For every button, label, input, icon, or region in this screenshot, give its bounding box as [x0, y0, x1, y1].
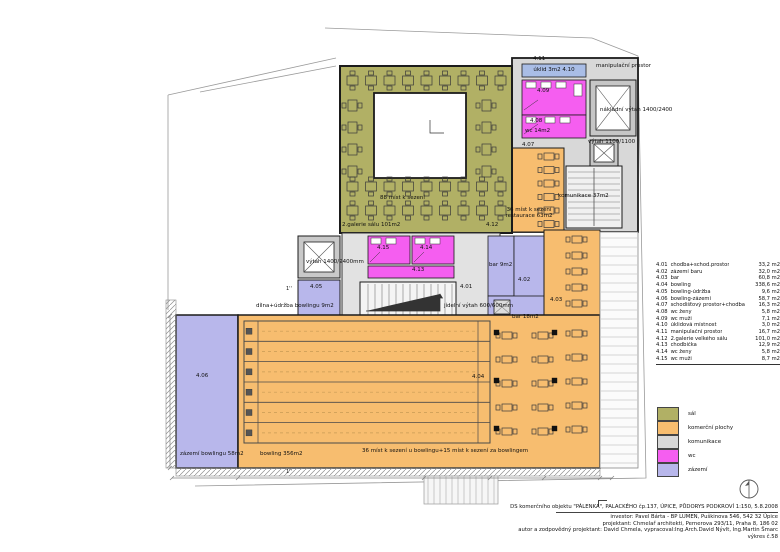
room-table-row: 4.03bar60,8 m2: [656, 275, 780, 282]
legend-swatch: [657, 463, 679, 477]
legend-item: sál: [657, 407, 733, 420]
room-table-row: 4.15wc muži8,7 m2: [656, 356, 780, 363]
label-bar-9m2: bar 9m2: [489, 262, 512, 268]
legend-label: zázemí: [688, 467, 707, 473]
room-label-4-07: 4.07: [522, 142, 534, 148]
hatched-strip-bottom: [176, 468, 600, 476]
room-label-4-06: 4.06: [196, 373, 208, 379]
section-mark-2: 1'': [286, 470, 292, 476]
room-label-4-05: 4.05: [310, 284, 322, 290]
room-table-row: 4.11manipulační prostor16,7 m2: [656, 329, 780, 336]
room-table-row: 4.06bowling-zázemí58,7 m2: [656, 296, 780, 303]
label-vytah-1400: výtah 1400/2400mm: [306, 259, 364, 265]
room-table-row: 4.08wc ženy5,8 m2: [656, 309, 780, 316]
room-label-4-09: 4.09: [537, 88, 549, 94]
room-table-row: 4.07schodišťový prostor+chodba16,3 m2: [656, 302, 780, 309]
terrace-strip: [600, 232, 638, 468]
legend-swatch: [657, 407, 679, 421]
legend-swatch: [657, 435, 679, 449]
room-table-row: 4.10úklidová místnost3,0 m2: [656, 322, 780, 329]
room-table-row: 4.14wc ženy5,8 m2: [656, 349, 780, 356]
room-label-4-04: 4.04: [472, 374, 484, 380]
room-table-row: 4.01chodba+schod.prostor33,2 m2: [656, 262, 780, 269]
legend-swatch: [657, 449, 679, 463]
label-vytah-1100: výtah 1100/1100: [588, 139, 635, 145]
room-label-4-13: 4.13: [412, 267, 424, 273]
label-restaurace: 36 míst k sezení restaurace 63m2: [500, 207, 558, 220]
room-chodbicka-413: [368, 266, 454, 278]
label-2-galerie-salu: 2.galerie sálu 101m2: [342, 222, 400, 228]
room-label-4-15: 4.15: [377, 245, 389, 251]
room-table-row: 4.122.galerie velkého sálu101,0 m2: [656, 336, 780, 343]
section-mark-1: 1'': [286, 287, 292, 293]
legend-item: wc: [657, 449, 733, 462]
label-restaurace-line2: restaurace 63m2: [500, 213, 558, 219]
label-manipulacni-prostor: manipulační prostor: [596, 63, 651, 69]
room-table-row: 4.02zázemí baru32,0 m2: [656, 269, 780, 276]
legend-label: wc: [688, 453, 696, 459]
label-zazemi-bowlingu: zázemí bowlingu 58m2: [180, 451, 244, 457]
label-36-mist-bowling: 36 míst k sezení u bowlingu+15 míst k se…: [362, 448, 528, 454]
legend-item: zázemí: [657, 463, 733, 476]
room-label-4-03: 4.03: [550, 297, 562, 303]
label-88-mist: 88 míst k sezení: [380, 195, 425, 201]
room-label-4-02: 4.02: [518, 277, 530, 283]
hall-elevator: [298, 236, 340, 278]
room-label-4-11: 4.11: [533, 56, 545, 62]
legend-item: komunikace: [657, 435, 733, 448]
room-table-row: 4.09wc muži7,1 m2: [656, 316, 780, 323]
room-schedule-table: 4.01chodba+schod.prostor33,2 m24.02zázem…: [656, 262, 780, 365]
legend-label: komunikace: [688, 439, 721, 445]
color-legend: sálkomerční plochykomunikacewczázemí: [657, 407, 733, 477]
hall-opening: [374, 93, 466, 178]
room-label-4-08: 4.08: [530, 118, 542, 124]
title-block: DS komerčního objektu "PÁLENKA", PALACKÉ…: [420, 504, 778, 540]
label-jidelni-vytah: jídelní výtah 600/600mm: [444, 303, 513, 309]
vykres-line: výkres č.58: [420, 534, 778, 540]
drawing-title: DS komerčního objektu "PÁLENKA", PALACKÉ…: [420, 504, 778, 510]
legend-label: komerční plochy: [688, 425, 733, 431]
room-table-row: 4.04bowling338,6 m2: [656, 282, 780, 289]
room-label-4-01: 4.01: [460, 284, 472, 290]
legend-item: komerční plochy: [657, 421, 733, 434]
exterior-steps: [424, 476, 498, 504]
room-404-bowling: [238, 315, 600, 468]
label-bar-18m2: bar 18m2: [512, 314, 539, 320]
room-table-row: 4.05bowling-údržba9,6 m2: [656, 289, 780, 296]
floor-plan: 4.11 úklid 3m2 4.10 manipulační prostor …: [0, 0, 780, 552]
room-label-4-14: 4.14: [420, 245, 432, 251]
room-406: [176, 315, 238, 468]
legend-swatch: [657, 421, 679, 435]
north-arrow-icon: [740, 480, 758, 498]
label-dilna-udrzba: dílna+údržba bowlingu 9m2: [256, 303, 334, 309]
label-komunikace-37: komunikace 37m2: [558, 193, 609, 199]
label-wc-14m2: wc 14m2: [525, 128, 550, 134]
room-table-row: 4.13chodbička12,9 m2: [656, 342, 780, 349]
label-bowling-356: bowling 356m2: [260, 451, 303, 457]
legend-label: sál: [688, 411, 696, 417]
title-block-rule: [556, 512, 778, 513]
room-label-4-12: 4.12: [486, 222, 498, 228]
room-label-uklid: úklid 3m2 4.10: [522, 67, 586, 73]
label-nakladni-vytah: nákladní výtah 1400/2400: [600, 107, 672, 113]
hatched-wall-left: [166, 300, 176, 468]
